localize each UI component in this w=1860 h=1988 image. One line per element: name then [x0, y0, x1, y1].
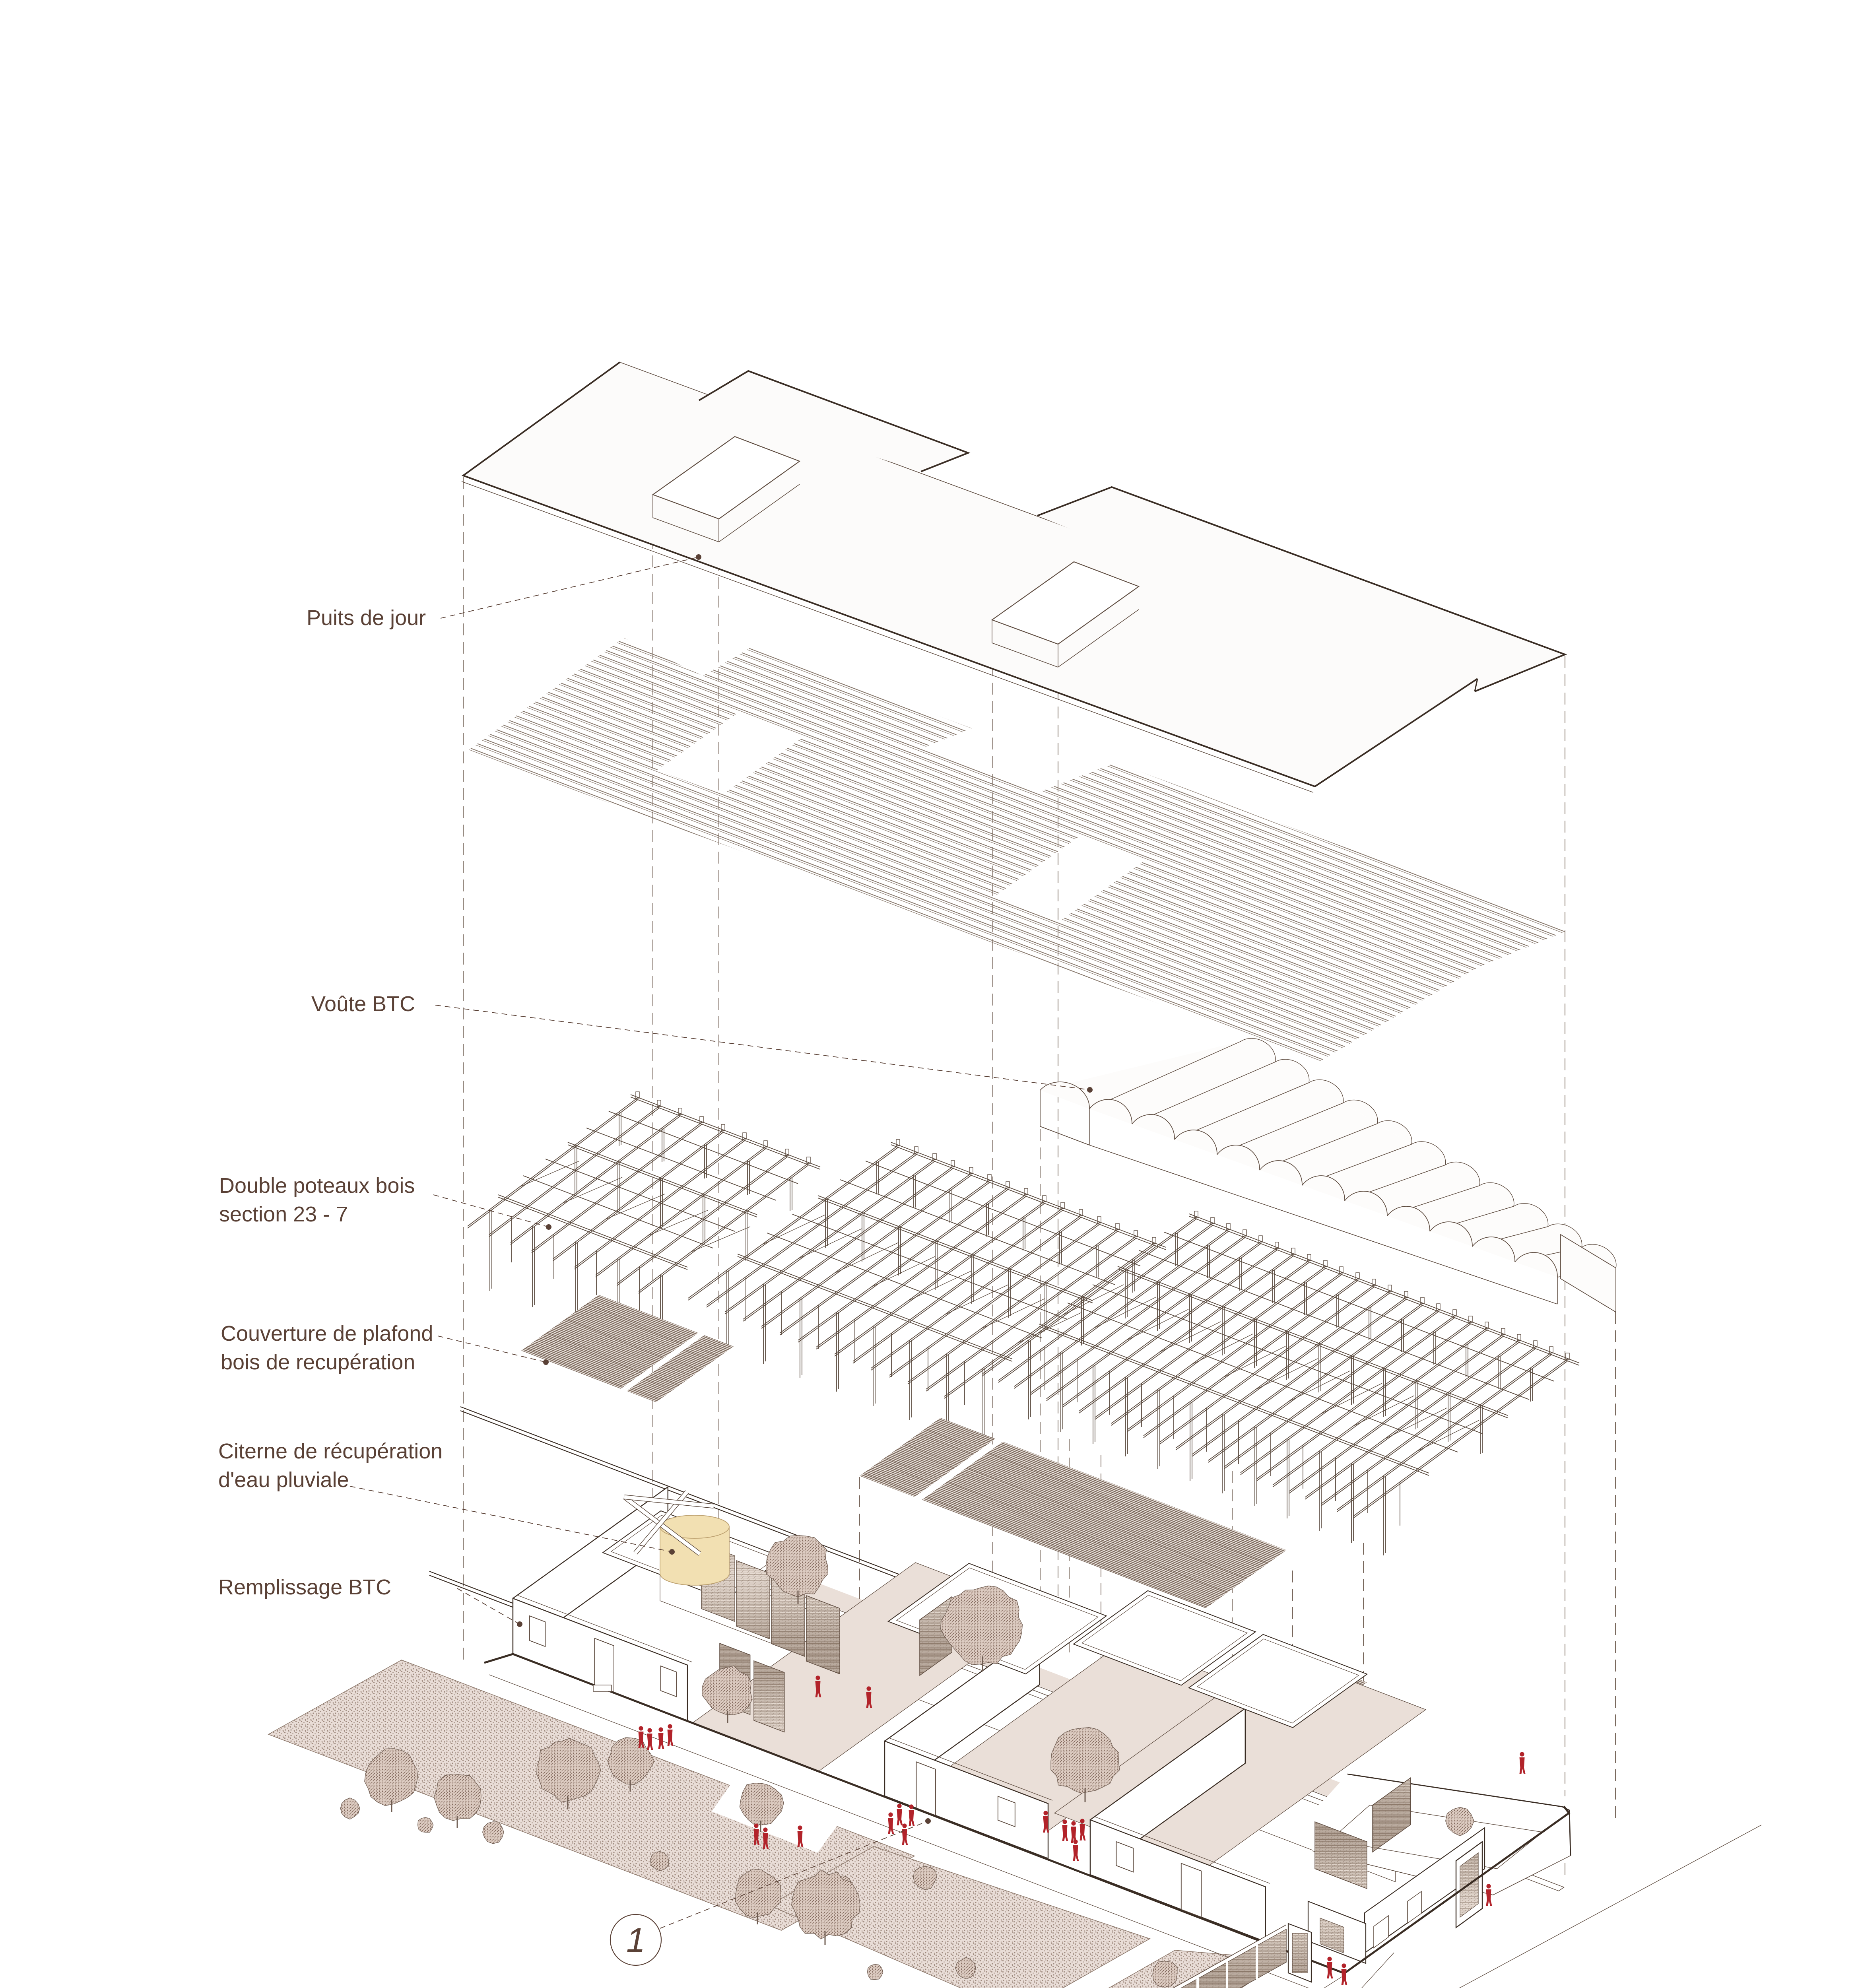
svg-text:Couverture de plafond: Couverture de plafond: [221, 1322, 433, 1345]
svg-text:Citerne de récupération: Citerne de récupération: [218, 1439, 443, 1463]
svg-text:bois de recupération: bois de recupération: [221, 1350, 415, 1374]
svg-text:Voûte BTC: Voûte BTC: [311, 992, 415, 1016]
svg-text:Remplissage BTC: Remplissage BTC: [218, 1575, 391, 1599]
svg-text:Puits de jour: Puits de jour: [307, 606, 426, 630]
svg-text:d'eau pluviale: d'eau pluviale: [218, 1468, 349, 1492]
svg-text:Double poteaux bois: Double poteaux bois: [219, 1174, 415, 1198]
svg-text:1: 1: [626, 1921, 645, 1959]
svg-text:section 23 - 7: section 23 - 7: [219, 1202, 348, 1226]
